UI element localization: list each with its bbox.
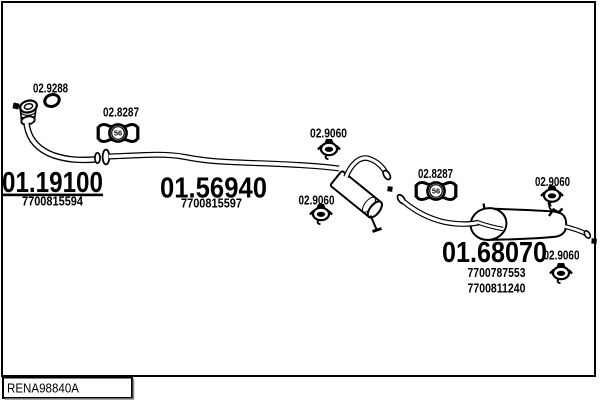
centre-silencer-ref: 7700815597 [181,196,242,211]
mounting-point-square [591,238,597,244]
pipe-coupling [95,153,100,163]
gasket-part-number: 02.9288 [33,81,68,96]
front-clamp-part-number: 02.8287 [103,105,139,120]
drawing-code-box: RENA98840A [3,378,134,400]
tail-hanger-part-number: 02.9060 [544,248,580,263]
exhaust-diagram: 56 56 02.9288 02.8287 02.9060 02.9060 02… [0,0,600,400]
rear-top-hanger-part-number: 02.9060 [535,174,570,189]
clamp-size-label: 56 [114,129,122,138]
clamp-size-label: 56 [432,187,440,196]
rear-silencer-ref-1: 7700787553 [468,265,526,280]
front-pipe-ref: 7700815594 [22,194,84,209]
rear-clamp-part-number: 02.8287 [418,166,453,181]
centre-top-hanger-part-number: 02.9060 [310,126,347,141]
pipe-coupling [103,150,110,165]
rear-silencer-ref-2: 7700811240 [468,281,526,296]
drawing-code: RENA98840A [7,381,79,396]
centre-bottom-hanger-part-number: 02.9060 [299,193,335,208]
mounting-point-square [387,186,393,192]
